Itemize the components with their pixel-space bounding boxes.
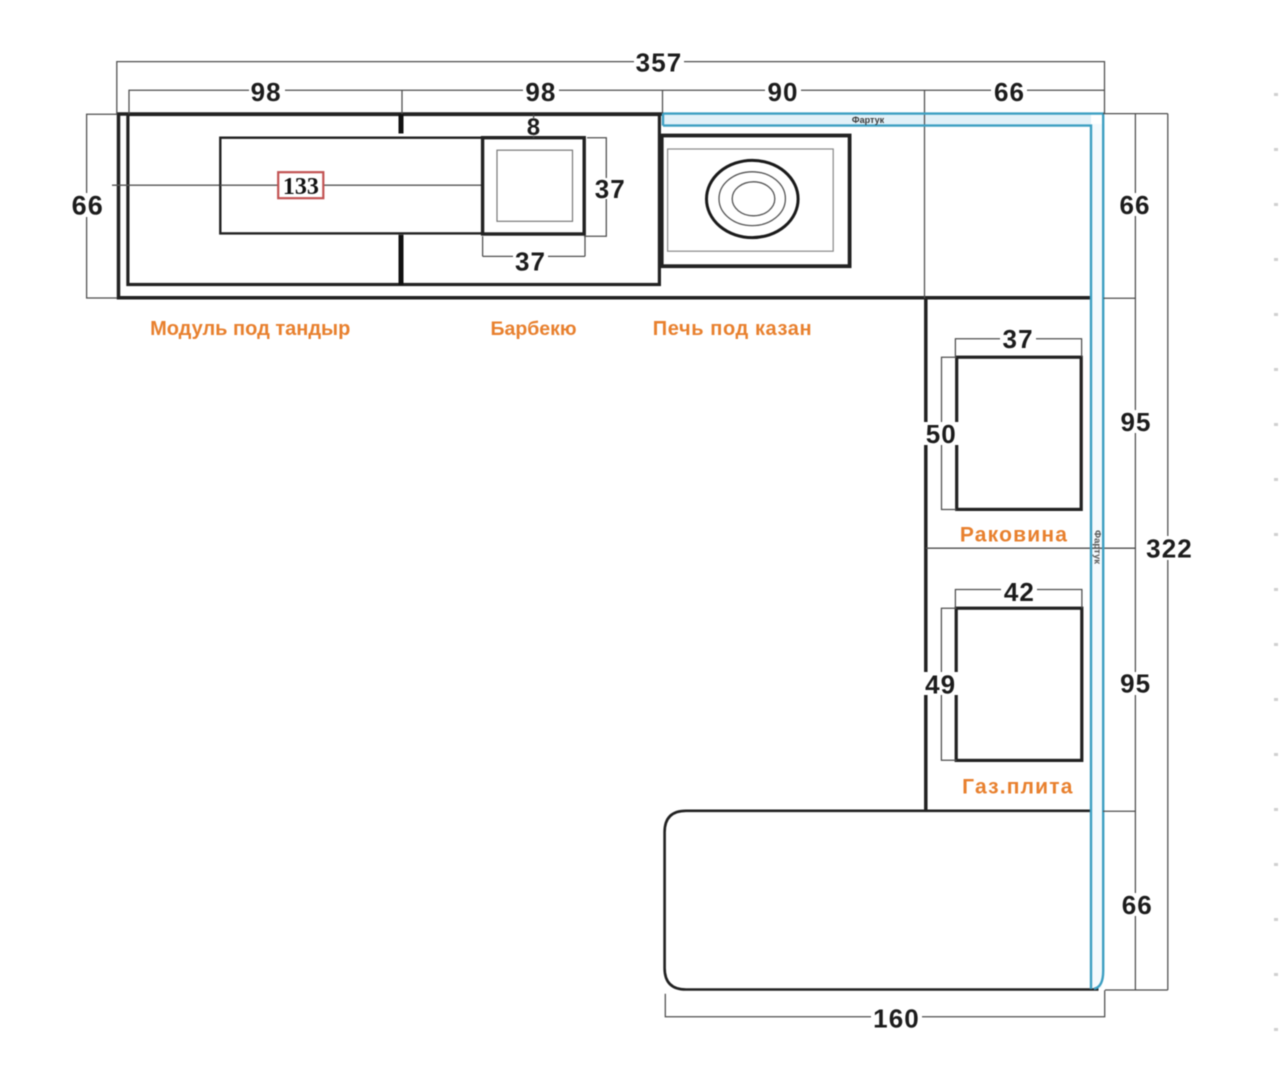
svg-text:322: 322: [1146, 533, 1193, 563]
svg-text:66: 66: [994, 77, 1025, 107]
svg-text:160: 160: [873, 1004, 920, 1034]
svg-text:95: 95: [1120, 407, 1151, 437]
svg-text:66: 66: [1122, 890, 1153, 920]
svg-text:42: 42: [1004, 577, 1035, 607]
svg-text:Раковина: Раковина: [960, 524, 1068, 547]
svg-text:98: 98: [525, 77, 556, 107]
svg-text:95: 95: [1120, 669, 1151, 699]
svg-text:66: 66: [72, 191, 104, 221]
svg-text:90: 90: [767, 77, 798, 107]
svg-text:Газ.плита: Газ.плита: [962, 776, 1074, 799]
svg-text:Фартук: Фартук: [852, 115, 885, 125]
svg-text:98: 98: [251, 77, 282, 107]
svg-text:Модуль под тандыр: Модуль под тандыр: [150, 318, 350, 340]
svg-text:Барбекю: Барбекю: [490, 318, 576, 340]
svg-text:50: 50: [926, 419, 957, 449]
svg-text:133: 133: [283, 174, 319, 200]
svg-text:66: 66: [1119, 190, 1150, 220]
svg-text:Печь под казан: Печь под казан: [653, 318, 812, 340]
svg-text:357: 357: [636, 48, 683, 78]
svg-text:Фартук: Фартук: [1091, 530, 1102, 564]
svg-text:37: 37: [1003, 324, 1034, 354]
svg-text:37: 37: [595, 174, 626, 204]
svg-text:37: 37: [515, 246, 546, 276]
svg-text:49: 49: [925, 669, 956, 699]
